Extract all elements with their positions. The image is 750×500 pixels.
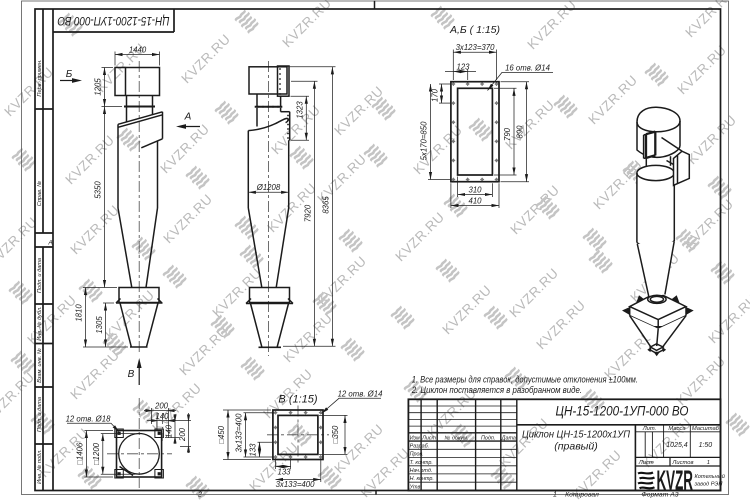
svg-text:7920: 7920 [303,204,312,222]
svg-text:3х133=400: 3х133=400 [235,413,244,452]
svg-text:Разраб.: Разраб. [410,444,430,450]
svg-text:Пров.: Пров. [410,452,424,458]
svg-text:ЦН-15-1200-1УП-000 ВО: ЦН-15-1200-1УП-000 ВО [556,403,689,419]
svg-text:1205: 1205 [94,78,103,96]
svg-text:Т. контр.: Т. контр. [410,460,433,466]
svg-text:KVZR.RU: KVZR.RU [496,415,551,470]
svg-text:133: 133 [277,468,291,477]
svg-text:1305: 1305 [95,316,104,334]
svg-text:Дата: Дата [501,435,516,441]
svg-text:Копировал: Копировал [565,492,599,499]
svg-text:410: 410 [468,196,482,205]
svg-text:KVZR.RU: KVZR.RU [280,310,335,365]
svg-text:3х133=400: 3х133=400 [276,480,315,489]
svg-text:Подп. и дата: Подп. и дата [37,258,43,293]
svg-text:16 отв. Ø14: 16 отв. Ø14 [505,63,550,72]
svg-text:Утв.: Утв. [409,484,422,490]
svg-text:12 отв. Ø18: 12 отв. Ø18 [66,415,111,424]
svg-text:KVZR.RU: KVZR.RU [682,0,737,40]
svg-text:KVZR.RU: KVZR.RU [533,297,588,352]
svg-text:5х170=850: 5х170=850 [420,121,429,160]
svg-text:KVZR.RU: KVZR.RU [507,182,562,237]
svg-text:200: 200 [178,427,187,442]
svg-text:KVZR.RU: KVZR.RU [1,64,56,119]
svg-text:170: 170 [431,88,440,102]
svg-text:Циклон ЦН-15-1200х1УП: Циклон ЦН-15-1200х1УП [522,428,630,440]
svg-text:KVZR.RU: KVZR.RU [24,292,79,347]
svg-text:890: 890 [516,125,525,139]
svg-text:Перв. примен.: Перв. примен. [37,59,43,96]
svg-text:KVZR.RU: KVZR.RU [157,121,212,176]
svg-text:Инв. № подл.: Инв. № подл. [37,449,43,484]
svg-text:1323: 1323 [295,101,304,119]
svg-text:Лит.: Лит. [642,426,657,432]
svg-text:1: 1 [707,460,710,466]
svg-text:В: В [128,369,135,380]
svg-text:KVZR.RU: KVZR.RU [705,291,750,346]
svg-text:KVZR.RU: KVZR.RU [684,112,739,167]
svg-text:Справ. №: Справ. № [37,181,43,206]
svg-text:1025,4: 1025,4 [666,442,688,449]
svg-text:KVZR.RU: KVZR.RU [681,196,736,251]
svg-text:KVZR.RU: KVZR.RU [102,287,157,342]
svg-text:KVZR.RU: KVZR.RU [0,369,37,424]
svg-text:Подп.: Подп. [481,435,495,441]
svg-text:133: 133 [249,443,258,457]
svg-text:Н. контр.: Н. контр. [410,476,434,482]
svg-text:KVZR.RU: KVZR.RU [524,0,579,52]
svg-text:KVZR.RU: KVZR.RU [357,445,412,500]
svg-text:5350: 5350 [94,181,103,199]
svg-text:Масса: Масса [668,426,686,432]
svg-text:KVZR.RU: KVZR.RU [502,97,557,152]
svg-text:12 отв. Ø14: 12 отв. Ø14 [338,390,383,399]
svg-text:KVZR: KVZR [657,465,694,496]
svg-text:KVZR.RU: KVZR.RU [439,282,494,337]
svg-text:KVZR.RU: KVZR.RU [506,265,561,320]
svg-text:140: 140 [165,424,174,438]
svg-text:□1200: □1200 [92,442,101,465]
svg-text:KVZR.RU: KVZR.RU [392,209,447,264]
svg-text:В (1:15): В (1:15) [278,394,317,406]
svg-text:А: А [47,240,52,247]
svg-text:А,Б ( 1:15): А,Б ( 1:15) [449,24,500,36]
svg-text:123: 123 [456,62,470,71]
svg-text:Подп. и дата: Подп. и дата [37,397,43,432]
svg-text:KVZR.RU: KVZR.RU [67,202,122,257]
svg-text:□450: □450 [217,425,226,443]
svg-text:KVZR.RU: KVZR.RU [160,191,215,246]
svg-text:KVZR.RU: KVZR.RU [67,347,122,402]
svg-text:KVZR.RU: KVZR.RU [209,265,264,320]
svg-text:790: 790 [503,127,512,141]
svg-text:Нач.отд.: Нач.отд. [410,468,433,474]
svg-text:KVZR.RU: KVZR.RU [585,72,640,127]
svg-text:310: 310 [468,185,482,194]
svg-text:Б: Б [66,69,73,80]
svg-text:2. Циклон поставляется в разоб: 2. Циклон поставляется в разобранном вид… [411,385,582,395]
svg-text:□1406: □1406 [76,442,85,465]
svg-text:Взам. инв. №: Взам. инв. № [37,348,43,383]
svg-text:Лист: Лист [421,435,436,441]
svg-text:□350: □350 [331,425,340,443]
svg-text:KVZR.RU: KVZR.RU [331,83,386,138]
svg-text:Лист: Лист [638,460,654,466]
svg-text:Масштаб: Масштаб [692,426,720,432]
svg-text:1. Все размеры для справок, до: 1. Все размеры для справок, допустимые о… [412,374,638,384]
svg-text:1440: 1440 [129,46,147,55]
svg-text:Ø1208: Ø1208 [256,183,281,192]
svg-text:2: 2 [197,492,202,499]
svg-text:1810: 1810 [75,304,84,322]
svg-text:№ докум.: № докум. [445,435,469,441]
svg-text:завод РЭП: завод РЭП [694,481,724,487]
svg-text:KVZR.RU: KVZR.RU [62,132,117,187]
svg-text:200: 200 [154,402,169,411]
svg-text:3х123=370: 3х123=370 [456,43,495,52]
svg-text:1: 1 [553,492,557,499]
svg-text:Инв. № дубл.: Инв. № дубл. [37,306,43,340]
svg-text:ЦН-15-1200-1УП-000 ВО: ЦН-15-1200-1УП-000 ВО [57,14,169,26]
svg-text:KVZR.RU: KVZR.RU [178,31,233,86]
svg-text:KVZR.RU: KVZR.RU [279,0,334,50]
svg-text:Изм: Изм [410,435,420,441]
svg-text:(правый): (правый) [554,440,598,452]
svg-text:Котельный: Котельный [695,473,725,480]
svg-text:А: А [184,112,192,123]
svg-text:8365: 8365 [321,196,330,214]
svg-text:1:50: 1:50 [699,442,713,449]
